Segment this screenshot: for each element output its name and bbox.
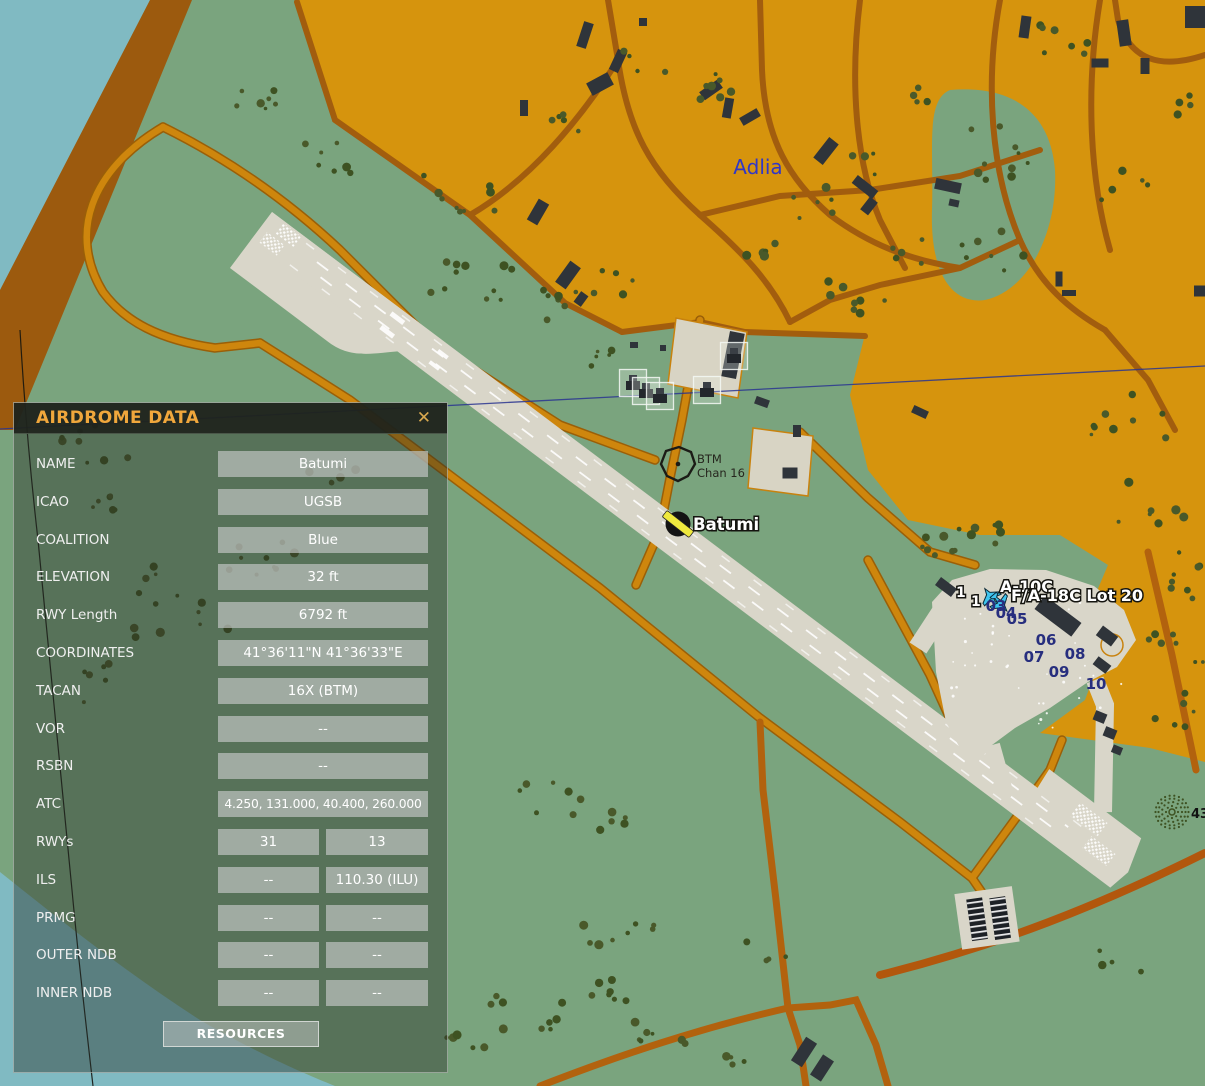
tree: [630, 278, 634, 282]
tree: [623, 815, 628, 820]
tree: [824, 277, 832, 285]
tree: [882, 298, 887, 303]
antenna-dot: [1173, 824, 1175, 826]
apron-speckle: [1005, 665, 1008, 668]
field-label: INNER NDB: [36, 985, 218, 1001]
apron-speckle: [964, 618, 966, 620]
tree: [764, 958, 770, 964]
unit-count-label: 1: [956, 585, 966, 601]
tree: [839, 283, 848, 292]
tree: [1124, 478, 1133, 487]
field-value: UGSB: [218, 489, 428, 515]
antenna-dot: [1169, 824, 1171, 826]
tree: [714, 72, 718, 76]
tree: [1195, 563, 1202, 570]
tree: [558, 999, 566, 1007]
tree: [454, 269, 459, 274]
parking-spot-label: 10: [1086, 675, 1107, 693]
field-row-prmg: PRMG -- --: [14, 905, 447, 931]
tree: [620, 820, 628, 828]
tree: [552, 1015, 560, 1023]
static-object-icon[interactable]: [647, 383, 674, 410]
antenna-dot: [1161, 813, 1163, 815]
tree: [727, 88, 735, 96]
antenna-dot: [1161, 809, 1163, 811]
antenna-dot: [1167, 807, 1169, 809]
tree: [924, 546, 931, 553]
tree: [998, 228, 1006, 236]
antenna-dot: [1169, 795, 1171, 797]
antenna-dot: [1181, 802, 1183, 804]
field-row-tacan: TACAN 16X (BTM): [14, 678, 447, 704]
apron-speckle: [974, 664, 976, 666]
antenna-dot: [1155, 816, 1157, 818]
tree: [974, 169, 983, 178]
tree: [234, 103, 239, 108]
tree: [1184, 587, 1191, 594]
antenna-dot: [1175, 815, 1177, 817]
field-label: VOR: [36, 721, 218, 737]
pier-pad: [954, 886, 1019, 950]
tree: [949, 548, 956, 555]
tree: [1019, 251, 1027, 259]
field-label: COALITION: [36, 532, 218, 548]
field-row-inner-ndb: INNER NDB -- --: [14, 980, 447, 1006]
tree: [920, 545, 925, 550]
tree: [612, 997, 617, 1002]
tree: [596, 350, 600, 354]
field-value: --: [218, 867, 319, 893]
apron-speckle: [979, 613, 981, 615]
tree: [960, 243, 965, 248]
building: [783, 468, 798, 479]
tree: [457, 209, 463, 215]
tree: [890, 246, 895, 251]
antenna-dot: [1178, 799, 1180, 801]
tree: [625, 931, 630, 936]
field-label: ILS: [36, 872, 218, 888]
tree: [633, 921, 638, 926]
antenna-dot: [1160, 823, 1162, 825]
apron-speckle: [1008, 635, 1010, 637]
tree: [939, 532, 948, 541]
antenna-dot: [1160, 798, 1162, 800]
apron-speckle: [990, 660, 993, 663]
antenna-dot: [1167, 815, 1169, 817]
antenna-dot: [1167, 802, 1169, 804]
antenna-dot: [1184, 806, 1186, 808]
parking-spot-label: 08: [1065, 645, 1086, 663]
tree: [538, 1026, 544, 1032]
tree: [743, 938, 750, 945]
tree: [1097, 949, 1102, 954]
antenna-dot: [1184, 811, 1186, 813]
tree: [924, 98, 931, 105]
tree: [610, 938, 615, 943]
tree: [1159, 411, 1165, 417]
field-value: 4.250, 131.000, 40.400, 260.000: [218, 791, 428, 817]
antenna-dot: [1164, 826, 1166, 828]
tree: [1179, 513, 1188, 522]
tree: [1068, 43, 1075, 50]
apron-speckle: [1120, 683, 1122, 685]
field-value: --: [218, 753, 428, 779]
antenna-dot: [1175, 807, 1177, 809]
field-row-name: NAME Batumi: [14, 451, 447, 477]
tree: [540, 287, 547, 294]
antenna-dot: [1154, 811, 1156, 813]
field-value: 31: [218, 829, 319, 855]
apron-speckle: [1099, 706, 1102, 709]
tree: [576, 129, 581, 134]
tree: [499, 1024, 508, 1033]
antenna-dot: [1187, 816, 1189, 818]
tree: [910, 92, 917, 99]
apron-speckle: [1074, 642, 1076, 644]
antenna-dot: [1171, 805, 1173, 807]
tree: [608, 976, 616, 984]
tree: [1154, 519, 1162, 527]
tree: [1172, 572, 1176, 576]
apron-speckle: [955, 686, 958, 689]
tree: [1091, 423, 1097, 429]
tree: [546, 293, 551, 298]
tree: [1109, 425, 1118, 434]
tree: [577, 796, 585, 804]
secondary-compound: [748, 428, 813, 496]
antenna-dot: [1177, 811, 1179, 813]
tree: [508, 266, 515, 273]
field-label: TACAN: [36, 683, 218, 699]
tree: [920, 237, 925, 242]
tree: [316, 163, 321, 168]
tree: [635, 69, 639, 73]
tree: [760, 251, 769, 260]
tree: [1192, 710, 1196, 714]
tree: [697, 95, 705, 103]
field-value: --: [218, 716, 428, 742]
tree: [1102, 410, 1110, 418]
tree: [623, 997, 630, 1004]
antenna-dot: [1165, 811, 1167, 813]
tree: [443, 258, 451, 266]
antenna-dot: [1155, 806, 1157, 808]
tree: [826, 291, 835, 300]
tree: [607, 988, 614, 995]
tree: [1148, 507, 1155, 514]
building: [1141, 58, 1150, 74]
static-object-icon[interactable]: [694, 377, 721, 404]
tree: [549, 117, 556, 124]
tree: [967, 530, 976, 539]
tree: [1174, 641, 1179, 646]
antenna-dot: [1185, 802, 1187, 804]
close-icon[interactable]: ✕: [417, 410, 431, 427]
tree: [1007, 172, 1016, 181]
tree: [717, 77, 723, 83]
tree: [608, 347, 616, 355]
antenna-dot: [1172, 801, 1174, 803]
tree: [969, 126, 975, 132]
antenna-dot: [1164, 823, 1166, 825]
tree: [974, 238, 982, 246]
tree: [544, 316, 551, 323]
tree: [919, 261, 924, 266]
field-row-rsbn: RSBN --: [14, 753, 447, 779]
tree: [915, 85, 922, 92]
tree: [484, 296, 489, 301]
tree: [1151, 630, 1159, 638]
tree: [500, 261, 509, 270]
apron-speckle: [1018, 687, 1020, 689]
tree: [434, 189, 442, 197]
antenna-dot: [1180, 816, 1182, 818]
tree: [992, 541, 998, 547]
tree: [922, 534, 930, 542]
tree: [1193, 660, 1197, 664]
apron-speckle: [964, 640, 967, 643]
field-row-coordinates: COORDINATES 41°36'11"N 41°36'33"E: [14, 640, 447, 666]
antenna-dot: [1164, 799, 1166, 801]
tree: [1026, 161, 1030, 165]
field-value: --: [326, 942, 428, 968]
antenna-dot: [1169, 798, 1171, 800]
tree: [332, 168, 337, 173]
tree: [914, 99, 919, 104]
apron-speckle: [952, 661, 954, 663]
tree: [488, 1001, 495, 1008]
tree: [1099, 197, 1104, 202]
building: [1092, 59, 1109, 68]
antenna-dot: [1178, 823, 1180, 825]
antenna-dot: [1161, 802, 1163, 804]
resources-button[interactable]: RESOURCES: [163, 1021, 319, 1047]
apron-speckle: [1046, 673, 1048, 675]
tree: [791, 195, 796, 200]
field-row-rwys: RWYs 31 13: [14, 829, 447, 855]
tree: [499, 998, 507, 1006]
tree: [1171, 505, 1180, 514]
tree: [1039, 25, 1046, 32]
apron-speckle: [1052, 727, 1054, 729]
field-value: --: [326, 905, 428, 931]
antenna-dot: [1180, 806, 1182, 808]
tree: [651, 1032, 655, 1036]
tree: [1152, 715, 1159, 722]
tree: [302, 141, 309, 148]
tree: [264, 107, 268, 111]
field-row-outer-ndb: OUTER NDB -- --: [14, 942, 447, 968]
field-label: NAME: [36, 456, 218, 472]
tree: [1129, 391, 1136, 398]
antenna-dot: [1161, 820, 1163, 822]
antenna-dot: [1177, 819, 1179, 821]
tree: [1083, 39, 1091, 47]
tree: [631, 1018, 640, 1027]
antenna-dot: [1172, 821, 1174, 823]
tree: [554, 292, 563, 301]
tree: [548, 1027, 553, 1032]
tree: [570, 811, 577, 818]
tree: [638, 1038, 643, 1043]
building: [639, 18, 647, 26]
tree: [851, 300, 858, 307]
field-value: 6792 ft: [218, 602, 428, 628]
tree: [707, 82, 716, 91]
tree: [486, 182, 494, 190]
tree: [851, 306, 858, 313]
antenna-dot: [1185, 820, 1187, 822]
airfield-label[interactable]: Batumi: [693, 515, 759, 534]
apron-speckle: [1038, 723, 1040, 725]
tree: [600, 268, 605, 273]
tree: [643, 1029, 650, 1036]
field-row-ils: ILS -- 110.30 (ILU): [14, 867, 447, 893]
tree: [682, 1040, 689, 1047]
tree: [589, 363, 595, 369]
apron-speckle: [950, 686, 953, 689]
field-value: Batumi: [218, 451, 428, 477]
tree: [1081, 51, 1087, 57]
tree: [1187, 102, 1193, 108]
parking-spot-label: 06: [1036, 631, 1057, 649]
building: [1194, 286, 1205, 297]
tree: [257, 99, 265, 107]
tree: [815, 200, 819, 204]
tree: [591, 290, 598, 297]
airdrome-data-panel: AIRDROME DATA ✕ NAME Batumi ICAO UGSB CO…: [13, 402, 448, 1073]
field-value: 13: [326, 829, 428, 855]
tree: [871, 152, 875, 156]
antenna-dot: [1169, 827, 1171, 829]
tree: [619, 290, 627, 298]
tree: [742, 251, 751, 260]
tree: [587, 940, 593, 946]
field-row-elevation: ELEVATION 32 ft: [14, 564, 447, 590]
town-label: Adlia: [733, 155, 782, 179]
tree: [613, 270, 619, 276]
tree: [319, 151, 323, 155]
tree: [932, 552, 938, 558]
field-row-atc: ATC 4.250, 131.000, 40.400, 260.000: [14, 791, 447, 817]
tree: [1110, 960, 1115, 965]
tree: [982, 161, 987, 166]
building: [1056, 272, 1063, 287]
field-value: --: [326, 980, 428, 1006]
tree: [861, 152, 869, 160]
antenna-dot: [1171, 817, 1173, 819]
building: [1062, 290, 1076, 296]
apron-speckle: [1068, 608, 1070, 610]
tree: [1012, 144, 1018, 150]
apron-speckle: [1079, 677, 1081, 679]
field-row-icao: ICAO UGSB: [14, 489, 447, 515]
tree: [491, 288, 496, 293]
field-row-coalition: COALITION Blue: [14, 527, 447, 553]
mission-editor-map-view: Adlia BTM Chan 16 Batumi 1 1 A-10C F/A-1…: [0, 0, 1205, 1086]
tree: [771, 240, 778, 247]
antenna-dot: [1187, 811, 1189, 813]
antenna-dot: [1187, 806, 1189, 808]
tree: [742, 1059, 747, 1064]
tree: [1177, 550, 1181, 554]
field-value: 32 ft: [218, 564, 428, 590]
antenna-dot: [1163, 804, 1165, 806]
building: [520, 100, 528, 116]
antenna-dot: [1157, 820, 1159, 822]
tree: [1117, 520, 1121, 524]
tree: [421, 173, 427, 179]
field-label: ICAO: [36, 494, 218, 510]
antenna-dot: [1182, 823, 1184, 825]
tree: [829, 198, 833, 202]
tree: [565, 788, 573, 796]
parking-spot-label: 05: [1007, 610, 1028, 628]
tree: [266, 96, 271, 101]
field-row-rwy-length: RWY Length 6792 ft: [14, 602, 447, 628]
antenna-dot: [1181, 811, 1183, 813]
tree: [729, 1055, 733, 1059]
tree: [595, 979, 603, 987]
tree: [492, 208, 498, 214]
tree: [849, 152, 856, 159]
antenna-dot: [1157, 802, 1159, 804]
tree: [453, 1030, 462, 1039]
tree: [1051, 26, 1059, 34]
tree: [1042, 50, 1047, 55]
apron-speckle: [952, 695, 955, 698]
apron-speckle: [1084, 665, 1086, 667]
tree: [594, 940, 603, 949]
field-value: Blue: [218, 527, 428, 553]
field-label: COORDINATES: [36, 645, 218, 661]
tree: [798, 216, 802, 220]
tree: [1201, 660, 1205, 664]
tree: [1145, 182, 1150, 187]
field-label: OUTER NDB: [36, 947, 218, 963]
tree: [893, 255, 900, 262]
tree: [596, 826, 604, 834]
tree: [273, 102, 278, 107]
tree: [493, 993, 499, 999]
tree: [1180, 700, 1187, 707]
antenna-dot: [1164, 796, 1166, 798]
antenna-dot: [1184, 816, 1186, 818]
parking-spot-label: 07: [1024, 648, 1045, 666]
building: [793, 425, 801, 437]
antenna-dot: [1173, 795, 1175, 797]
apron-speckle: [964, 664, 966, 666]
tree: [589, 992, 596, 999]
field-label: RSBN: [36, 758, 218, 774]
tree: [997, 123, 1003, 129]
parking-spot-label: 09: [1049, 663, 1070, 681]
unit-type-label[interactable]: F/A-18C Lot 20: [1011, 586, 1143, 605]
tree: [662, 69, 668, 75]
tree: [240, 89, 245, 94]
field-value: --: [218, 942, 319, 968]
tree: [579, 921, 588, 930]
tree: [1190, 596, 1196, 602]
static-object-icon[interactable]: [721, 343, 748, 370]
panel-body: NAME Batumi ICAO UGSB COALITION Blue ELE…: [14, 451, 447, 1047]
tree: [964, 255, 969, 260]
tree: [480, 1043, 488, 1051]
tree: [1098, 961, 1106, 969]
antenna-dot: [1158, 806, 1160, 808]
tree: [1182, 723, 1189, 730]
field-label: ATC: [36, 796, 218, 812]
